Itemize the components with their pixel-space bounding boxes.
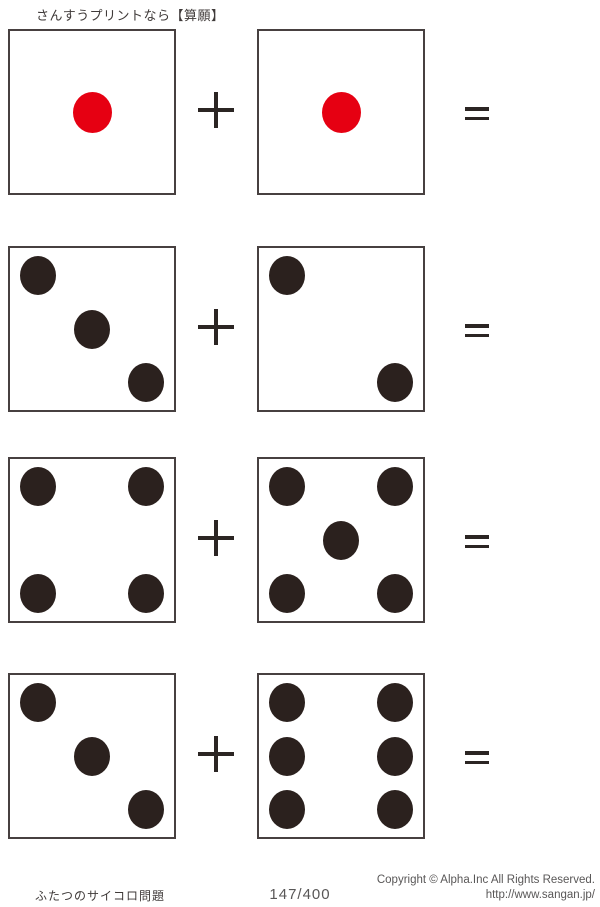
page-number: 147/400 [269,886,330,903]
left-die [8,457,176,623]
plus-icon [198,92,234,128]
red-pip [322,92,361,133]
black-pip [269,790,305,829]
equals-icon [465,751,489,764]
black-pip [20,256,56,295]
copyright-block: Copyright © Alpha.Inc All Rights Reserve… [377,873,595,902]
equals-icon [465,107,489,120]
right-die [257,457,425,623]
copyright-text: Copyright © Alpha.Inc All Rights Reserve… [377,873,595,888]
red-pip [73,92,112,133]
black-pip [128,574,164,613]
black-pip [377,790,413,829]
equals-icon [465,324,489,337]
problem-row-1 [0,29,600,195]
worksheet-name: ふたつのサイコロ問題 [35,887,165,904]
black-pip [74,737,110,776]
black-pip [269,574,305,613]
left-die [8,29,176,195]
left-die [8,246,176,412]
black-pip [269,683,305,722]
problem-row-4 [0,673,600,839]
black-pip [323,521,359,560]
right-die [257,246,425,412]
plus-icon [198,309,234,345]
black-pip [377,574,413,613]
black-pip [269,737,305,776]
black-pip [269,467,305,506]
black-pip [377,683,413,722]
problem-row-2 [0,246,600,412]
black-pip [128,467,164,506]
black-pip [74,310,110,349]
black-pip [377,467,413,506]
black-pip [269,256,305,295]
black-pip [377,363,413,402]
plus-icon [198,736,234,772]
black-pip [20,467,56,506]
problem-row-3 [0,457,600,623]
right-die [257,673,425,839]
black-pip [20,683,56,722]
left-die [8,673,176,839]
black-pip [20,574,56,613]
site-url: http://www.sangan.jp/ [377,888,595,903]
page-title: さんすうプリントなら【算願】 [36,5,224,24]
black-pip [128,790,164,829]
right-die [257,29,425,195]
equals-icon [465,535,489,548]
black-pip [377,737,413,776]
black-pip [128,363,164,402]
worksheet-page: さんすうプリントなら【算願】 ふたつのサイコロ問題 147/400 Copyri… [0,0,600,907]
plus-icon [198,520,234,556]
